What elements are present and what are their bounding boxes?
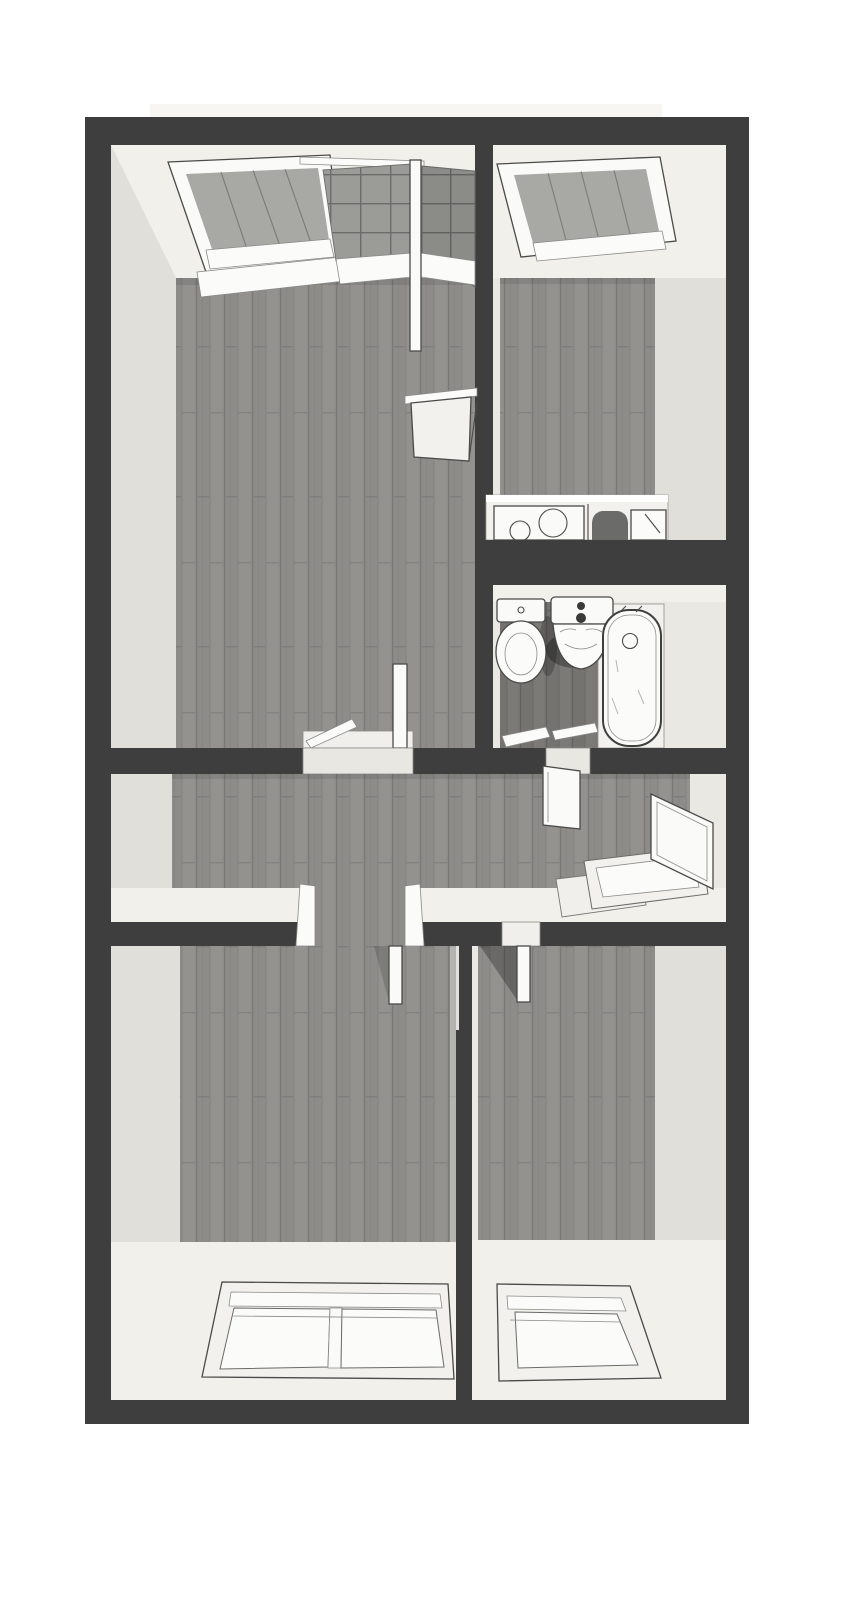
floor-plan-render [0,0,867,1600]
divider-lit-edge [456,946,459,1030]
living-room [111,145,477,748]
faucet-knob [577,602,585,610]
floor-lit-strip [450,946,456,1242]
bathtub [603,606,661,746]
living-room-floor [176,278,475,748]
window-glass [514,169,659,243]
wall-top-hallway [85,748,749,774]
kitchen-floor [500,278,655,500]
wall-kitchen-bathroom [475,540,749,585]
bedroom-left-floor [180,946,456,1242]
kitchen-roof-window [497,157,676,261]
toilet-tank [497,599,545,622]
bedroom-left [111,946,456,1400]
window-top-rail [507,1296,626,1311]
window-top-rail [229,1292,442,1308]
toilet-bowl [496,621,546,683]
bedroom-left-window [202,1282,454,1379]
bedroom-right-corner-face [655,1240,726,1400]
counter-edge-highlight [486,495,668,502]
bedroom-right-threshold [502,922,540,946]
bedroom-left-side-wall-face [111,946,180,1242]
faucet-spout [576,613,586,623]
kitchen-counter [486,495,668,541]
bedroom-right [472,946,726,1400]
sink-basin [592,511,628,540]
kitchen [486,145,726,541]
balcony-door-frame-post [410,160,421,351]
open-door-panel [393,664,407,748]
doorway-floor [315,886,405,946]
door-panel [411,397,471,461]
balcony-tiles-left [323,164,412,261]
hallway-left-wall-face [111,774,172,888]
floor-wall-shadow [500,278,655,284]
hall-bedroom-left-doorway [296,884,424,946]
bedroom-right-floor [478,946,655,1240]
living-doorway-gap [303,748,413,774]
bathroom-door-panel-open [543,766,580,829]
open-door-panel [517,946,530,1002]
drainboard [631,510,666,540]
bathroom [493,585,726,748]
open-door-panel [389,946,402,1004]
floor-plan-page [0,0,867,1600]
floor-wall-shadow [172,774,690,779]
kitchen-door-open [405,388,477,461]
bathtub-rim [603,610,661,746]
bedroom-right-side-wall-face [655,946,726,1240]
roof-edge-strip [150,104,662,118]
